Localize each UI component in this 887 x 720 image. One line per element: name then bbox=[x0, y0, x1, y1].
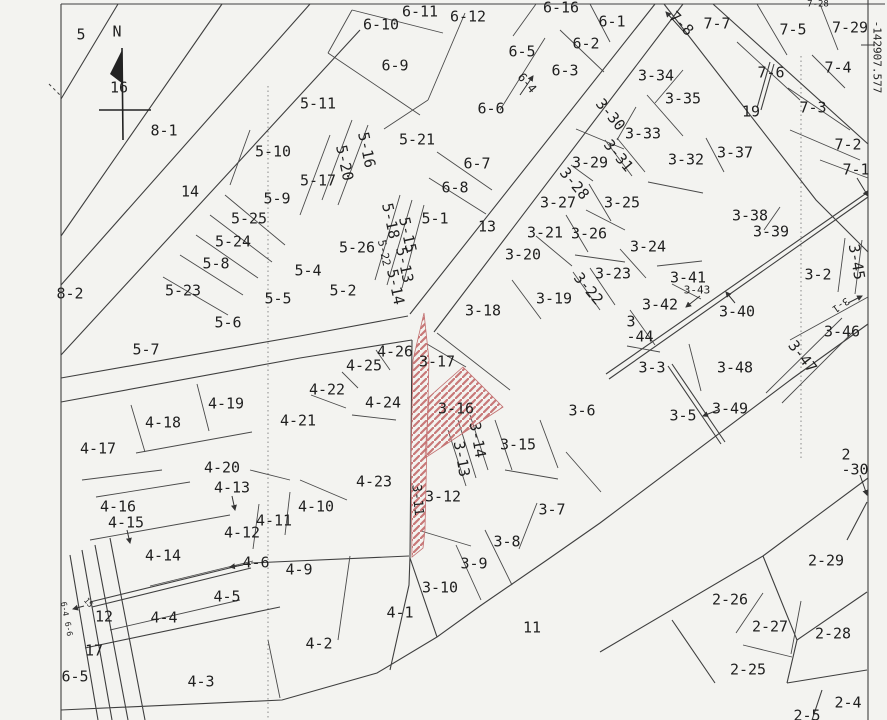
parcel-label: 7-28 bbox=[807, 0, 829, 9]
parcel-label: 4-9 bbox=[285, 562, 312, 577]
parcel-label: 3-47 bbox=[785, 338, 819, 376]
parcel-labels-layer: 5N168-1148-25-115-105-175-165-205-95-255… bbox=[0, 0, 887, 720]
parcel-label: 5-21 bbox=[399, 132, 435, 147]
parcel-label: 6-4 bbox=[59, 601, 70, 617]
parcel-label: 7-5 bbox=[779, 22, 806, 37]
parcel-label: 6-9 bbox=[381, 58, 408, 73]
parcel-label: 5-5 bbox=[264, 291, 291, 306]
parcel-label: 5-10 bbox=[255, 144, 291, 159]
parcel-label: 6-12 bbox=[450, 9, 486, 24]
parcel-label: 6-10 bbox=[363, 17, 399, 32]
parcel-label: 4-20 bbox=[204, 460, 240, 475]
parcel-label: 6-16 bbox=[543, 0, 579, 15]
cadastral-map: 5N168-1148-25-115-105-175-165-205-95-255… bbox=[0, 0, 887, 720]
parcel-label: 13 bbox=[478, 219, 496, 234]
parcel-label: 3-9 bbox=[460, 556, 487, 571]
parcel-label: 3-33 bbox=[625, 126, 661, 141]
parcel-label: 2-29 bbox=[808, 553, 844, 568]
parcel-label: 5-26 bbox=[339, 240, 375, 255]
parcel-label: 2-28 bbox=[815, 626, 851, 641]
parcel-label: 7-6 bbox=[757, 65, 784, 80]
parcel-label: 3-39 bbox=[753, 224, 789, 239]
parcel-label: 5-9 bbox=[263, 191, 290, 206]
parcel-label: 6-3 bbox=[551, 63, 578, 78]
parcel-label: 4-25 bbox=[346, 358, 382, 373]
parcel-label: 2-26 bbox=[712, 592, 748, 607]
parcel-label: 4-3 bbox=[187, 674, 214, 689]
parcel-label: 2-25 bbox=[730, 662, 766, 677]
parcel-label: 7-4 bbox=[824, 60, 851, 75]
parcel-label: 4-16 bbox=[100, 499, 136, 514]
parcel-label: 3 -44 bbox=[626, 315, 653, 346]
parcel-label: 3-17 bbox=[419, 354, 455, 369]
parcel-label: 7-8 bbox=[666, 9, 696, 39]
parcel-label: -142907.577 bbox=[871, 21, 882, 94]
parcel-label: 5-17 bbox=[300, 173, 336, 188]
parcel-label: 3-5 bbox=[669, 408, 696, 423]
parcel-label: 3-43 bbox=[684, 284, 711, 295]
parcel-label: 5-11 bbox=[300, 96, 336, 111]
parcel-label: 4-13 bbox=[214, 480, 250, 495]
parcel-label: 5-2 bbox=[329, 283, 356, 298]
parcel-label: 3-15 bbox=[500, 437, 536, 452]
parcel-label: 7-29 bbox=[832, 20, 868, 35]
parcel-label: 3-29 bbox=[572, 155, 608, 170]
parcel-label: 4-10 bbox=[298, 499, 334, 514]
parcel-label: 6-5 bbox=[61, 669, 88, 684]
parcel-label: 3-7 bbox=[538, 502, 565, 517]
parcel-label: 2-27 bbox=[752, 619, 788, 634]
parcel-label: 3-32 bbox=[668, 152, 704, 167]
parcel-label: 3-2 bbox=[804, 267, 831, 282]
parcel-label: 4-4 bbox=[150, 610, 177, 625]
parcel-label: 4-17 bbox=[80, 441, 116, 456]
parcel-label: 3-6 bbox=[568, 403, 595, 418]
parcel-label: 5-6 bbox=[214, 315, 241, 330]
parcel-label: 3-38 bbox=[732, 208, 768, 223]
parcel-label: 7-2 bbox=[834, 137, 861, 152]
parcel-label: 3-13 bbox=[450, 440, 471, 478]
parcel-label: 6-4 bbox=[515, 71, 538, 95]
parcel-label: 5 bbox=[76, 27, 85, 42]
parcel-label: 4-22 bbox=[309, 382, 345, 397]
parcel-label: 3-48 bbox=[717, 360, 753, 375]
parcel-label: 14 bbox=[181, 184, 199, 199]
parcel-label: 3-20 bbox=[505, 247, 541, 262]
parcel-label: 7-3 bbox=[799, 100, 826, 115]
parcel-label: 5-24 bbox=[215, 234, 251, 249]
parcel-label: 3-12 bbox=[425, 489, 461, 504]
parcel-label: 4-15 bbox=[108, 515, 144, 530]
parcel-label: 3-49 bbox=[712, 401, 748, 416]
highlighted-parcel-label: 3-16 bbox=[438, 401, 474, 416]
parcel-label: 11 bbox=[523, 620, 541, 635]
parcel-label: 6-7 bbox=[463, 156, 490, 171]
parcel-label: 4-5 bbox=[213, 589, 240, 604]
parcel-label: 4-26 bbox=[377, 344, 413, 359]
parcel-label: 6-11 bbox=[402, 4, 438, 19]
parcel-label: 3-45 bbox=[845, 243, 866, 281]
parcel-label: 3-21 bbox=[527, 225, 563, 240]
parcel-label: 2-5 bbox=[793, 708, 820, 720]
parcel-label: 3-19 bbox=[536, 291, 572, 306]
parcel-label: 5-8 bbox=[202, 256, 229, 271]
parcel-label: 4-11 bbox=[256, 513, 292, 528]
parcel-label: 4-21 bbox=[280, 413, 316, 428]
parcel-label: N bbox=[112, 24, 121, 39]
parcel-label: 8-2 bbox=[56, 286, 83, 301]
parcel-label: 5-22 bbox=[376, 239, 392, 267]
parcel-label: 6-5 bbox=[508, 44, 535, 59]
parcel-label: 2-4 bbox=[834, 695, 861, 710]
parcel-label: 4-12 bbox=[224, 525, 260, 540]
parcel-label: 3-46 bbox=[824, 324, 860, 339]
parcel-label: 5-23 bbox=[165, 283, 201, 298]
parcel-label: 3-34 bbox=[638, 68, 674, 83]
parcel-label: 3-27 bbox=[540, 195, 576, 210]
parcel-label: 3-10 bbox=[422, 580, 458, 595]
parcel-label: 3-26 bbox=[571, 226, 607, 241]
parcel-label: 6-2 bbox=[572, 36, 599, 51]
parcel-label: 3-37 bbox=[717, 145, 753, 160]
parcel-label: 3-40 bbox=[719, 304, 755, 319]
parcel-label: 8-1 bbox=[150, 123, 177, 138]
parcel-label: 6-8 bbox=[441, 180, 468, 195]
parcel-label: 4-1 bbox=[386, 605, 413, 620]
parcel-label: 6-6 bbox=[477, 101, 504, 116]
parcel-label: 3-1 bbox=[830, 295, 851, 314]
parcel-label: 12 bbox=[95, 609, 113, 624]
parcel-label: 3-3 bbox=[638, 360, 665, 375]
parcel-label: 6-1 bbox=[598, 14, 625, 29]
parcel-label: 7-7 bbox=[703, 16, 730, 31]
parcel-label: 3-23 bbox=[595, 266, 631, 281]
parcel-label: 4-23 bbox=[356, 474, 392, 489]
parcel-label: 5-7 bbox=[132, 342, 159, 357]
parcel-label: 3-24 bbox=[630, 239, 666, 254]
parcel-label: 3-18 bbox=[465, 303, 501, 318]
parcel-label: 4-24 bbox=[365, 395, 401, 410]
parcel-label: 4-2 bbox=[305, 636, 332, 651]
parcel-label: 6-6 bbox=[63, 621, 74, 637]
parcel-label: 3-35 bbox=[665, 91, 701, 106]
parcel-label: 19 bbox=[742, 104, 760, 119]
parcel-label: 17 bbox=[85, 643, 103, 658]
parcel-label: 2 -30 bbox=[841, 448, 868, 479]
parcel-label: 5-1 bbox=[421, 211, 448, 226]
parcel-label: 5-4 bbox=[294, 263, 321, 278]
parcel-label: 3-8 bbox=[493, 534, 520, 549]
parcel-label: 5-25 bbox=[231, 211, 267, 226]
parcel-label: 15 bbox=[82, 597, 94, 610]
parcel-label: 5-16 bbox=[355, 131, 377, 170]
parcel-label: 4-18 bbox=[145, 415, 181, 430]
parcel-label: 4-6 bbox=[242, 555, 269, 570]
parcel-label: 4-19 bbox=[208, 396, 244, 411]
parcel-label: 4-14 bbox=[145, 548, 181, 563]
parcel-label: 3-42 bbox=[642, 297, 678, 312]
parcel-label: 16 bbox=[110, 80, 128, 95]
parcel-label: 7-1 bbox=[842, 162, 869, 177]
parcel-label: 5-20 bbox=[333, 144, 355, 183]
parcel-label: 3-25 bbox=[604, 195, 640, 210]
parcel-label: 3-30 bbox=[593, 96, 628, 134]
highlighted-parcel-label: 3-11 bbox=[409, 484, 425, 516]
